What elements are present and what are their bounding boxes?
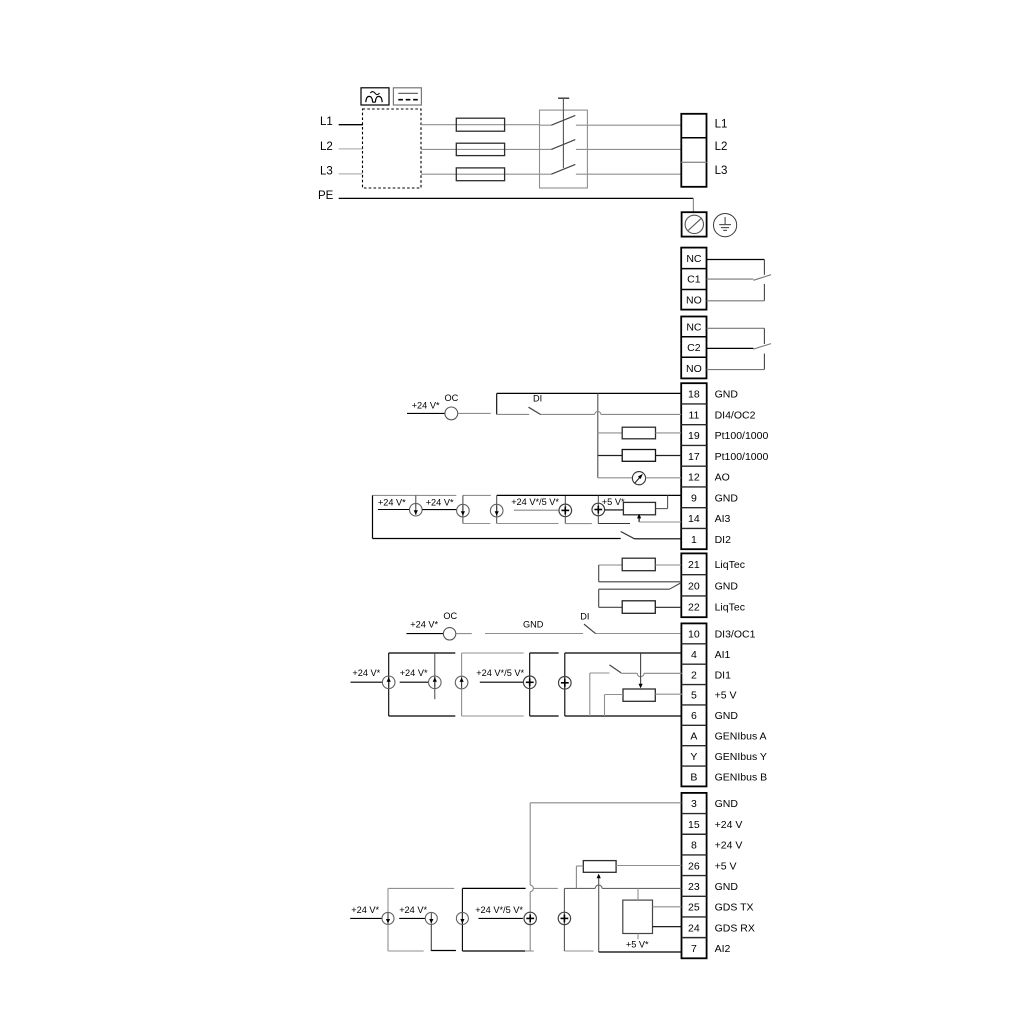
svg-text:20: 20 <box>688 580 700 592</box>
svg-text:DI4/OC2: DI4/OC2 <box>715 409 756 421</box>
svg-text:GND: GND <box>715 798 739 810</box>
svg-text:14: 14 <box>688 513 700 525</box>
svg-text:3: 3 <box>691 798 697 810</box>
svg-text:AI3: AI3 <box>715 513 731 525</box>
svg-text:1: 1 <box>691 534 697 546</box>
svg-text:OC: OC <box>443 611 457 621</box>
svg-text:+24 V*: +24 V* <box>426 497 454 507</box>
svg-text:GENIbus A: GENIbus A <box>715 730 767 742</box>
svg-text:5: 5 <box>691 690 697 702</box>
svg-text:+24 V*: +24 V* <box>410 620 438 630</box>
svg-text:L2: L2 <box>715 141 728 153</box>
svg-text:+24 V*: +24 V* <box>399 905 427 915</box>
svg-text:+24 V*: +24 V* <box>400 668 428 678</box>
svg-text:+5 V*: +5 V* <box>602 497 625 507</box>
svg-text:+24 V: +24 V <box>715 819 743 831</box>
svg-text:GENIbus B: GENIbus B <box>715 771 768 783</box>
svg-text:+24 V*/5 V*: +24 V*/5 V* <box>476 668 524 678</box>
svg-text:C2: C2 <box>687 342 701 354</box>
svg-text:+24 V*: +24 V* <box>351 905 379 915</box>
svg-text:10: 10 <box>688 629 700 641</box>
svg-text:+5 V*: +5 V* <box>626 940 649 950</box>
svg-text:23: 23 <box>688 881 700 893</box>
svg-text:NC: NC <box>686 253 702 265</box>
svg-text:+24 V*: +24 V* <box>352 668 380 678</box>
svg-text:AO: AO <box>715 472 730 484</box>
svg-text:L1: L1 <box>320 116 333 128</box>
svg-text:GND: GND <box>523 620 544 630</box>
svg-text:8: 8 <box>691 840 697 852</box>
svg-text:4: 4 <box>691 649 697 661</box>
svg-text:DI1: DI1 <box>715 669 732 681</box>
svg-text:AI1: AI1 <box>715 649 731 661</box>
svg-text:GND: GND <box>715 580 739 592</box>
svg-text:+24 V: +24 V <box>715 840 743 852</box>
svg-text:2: 2 <box>691 669 697 681</box>
svg-text:A: A <box>690 730 697 742</box>
svg-text:+5 V: +5 V <box>715 860 737 872</box>
svg-text:11: 11 <box>688 409 699 421</box>
svg-text:+24 V*/5 V*: +24 V*/5 V* <box>475 905 523 915</box>
svg-text:GND: GND <box>715 881 739 893</box>
svg-text:12: 12 <box>688 472 700 484</box>
svg-text:LiqTec: LiqTec <box>715 559 745 571</box>
svg-text:Y: Y <box>690 751 697 763</box>
svg-text:+5 V: +5 V <box>715 690 737 702</box>
svg-text:17: 17 <box>688 451 700 463</box>
svg-text:GDS TX: GDS TX <box>715 902 754 914</box>
svg-text:DI: DI <box>580 611 589 621</box>
svg-text:+24 V*: +24 V* <box>412 400 440 410</box>
svg-text:6: 6 <box>691 710 697 722</box>
svg-text:DI3/OC1: DI3/OC1 <box>715 629 756 641</box>
svg-text:7: 7 <box>691 943 697 955</box>
svg-text:L3: L3 <box>715 165 728 177</box>
svg-text:NC: NC <box>686 322 702 334</box>
svg-text:DI2: DI2 <box>715 534 732 546</box>
svg-text:GND: GND <box>715 492 739 504</box>
svg-text:15: 15 <box>688 819 700 831</box>
svg-text:+24 V*/5 V*: +24 V*/5 V* <box>511 497 559 507</box>
svg-text:19: 19 <box>688 430 700 442</box>
svg-text:NO: NO <box>686 363 702 375</box>
svg-text:DI: DI <box>533 393 542 403</box>
svg-text:C1: C1 <box>687 274 701 286</box>
svg-text:GENIbus Y: GENIbus Y <box>715 751 767 763</box>
svg-text:22: 22 <box>688 602 700 614</box>
svg-text:21: 21 <box>688 559 700 571</box>
svg-text:+24 V*: +24 V* <box>378 497 406 507</box>
svg-text:L2: L2 <box>320 141 333 153</box>
svg-text:LiqTec: LiqTec <box>715 602 745 614</box>
svg-text:9: 9 <box>691 492 697 504</box>
svg-text:AI2: AI2 <box>715 943 731 955</box>
svg-text:B: B <box>690 771 697 783</box>
svg-text:24: 24 <box>688 922 700 934</box>
svg-text:GND: GND <box>715 710 739 722</box>
svg-text:Pt100/1000: Pt100/1000 <box>715 451 769 463</box>
svg-text:PE: PE <box>318 190 334 202</box>
svg-text:25: 25 <box>688 902 700 914</box>
svg-text:Pt100/1000: Pt100/1000 <box>715 430 769 442</box>
svg-text:NO: NO <box>686 295 702 307</box>
svg-text:18: 18 <box>688 389 700 401</box>
svg-text:OC: OC <box>445 393 459 403</box>
svg-text:L3: L3 <box>320 166 333 178</box>
svg-text:26: 26 <box>688 860 700 872</box>
svg-text:L1: L1 <box>715 118 728 130</box>
svg-text:GND: GND <box>715 389 739 401</box>
svg-text:GDS RX: GDS RX <box>715 922 755 934</box>
